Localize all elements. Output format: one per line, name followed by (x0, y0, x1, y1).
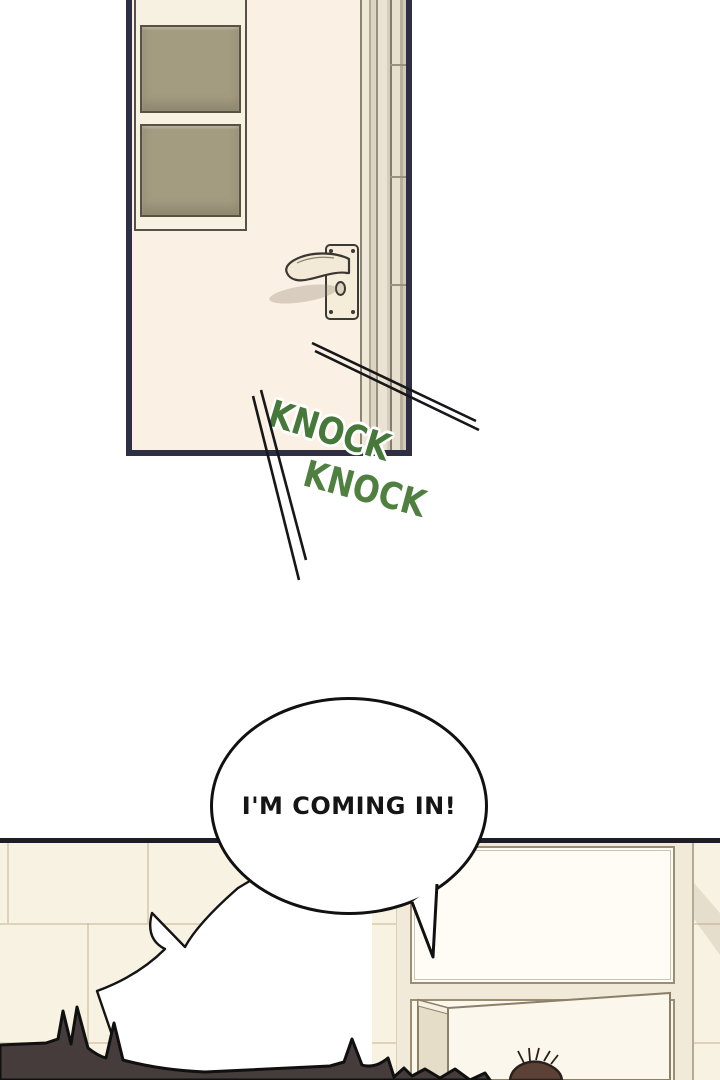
screw-icon (351, 249, 355, 253)
screw-icon (329, 310, 333, 314)
comic-page: KNOCK KNOCK (0, 0, 720, 1080)
door-window-pane-top (140, 25, 241, 113)
speech-bubble-tail (395, 875, 450, 970)
screw-icon (351, 310, 355, 314)
frame-joint-line (390, 176, 406, 178)
tail-shape (412, 884, 437, 957)
screw-icon (329, 249, 333, 253)
inner-door-face (448, 993, 670, 1080)
corner-shadow (694, 883, 720, 955)
speech-text: I'M COMING IN! (242, 792, 456, 820)
frame-joint-line (390, 284, 406, 286)
keyhole-icon (335, 281, 346, 296)
frame-joint-line (390, 64, 406, 66)
door-frame-edge (360, 0, 406, 450)
door-window-pane-bottom (140, 124, 241, 217)
